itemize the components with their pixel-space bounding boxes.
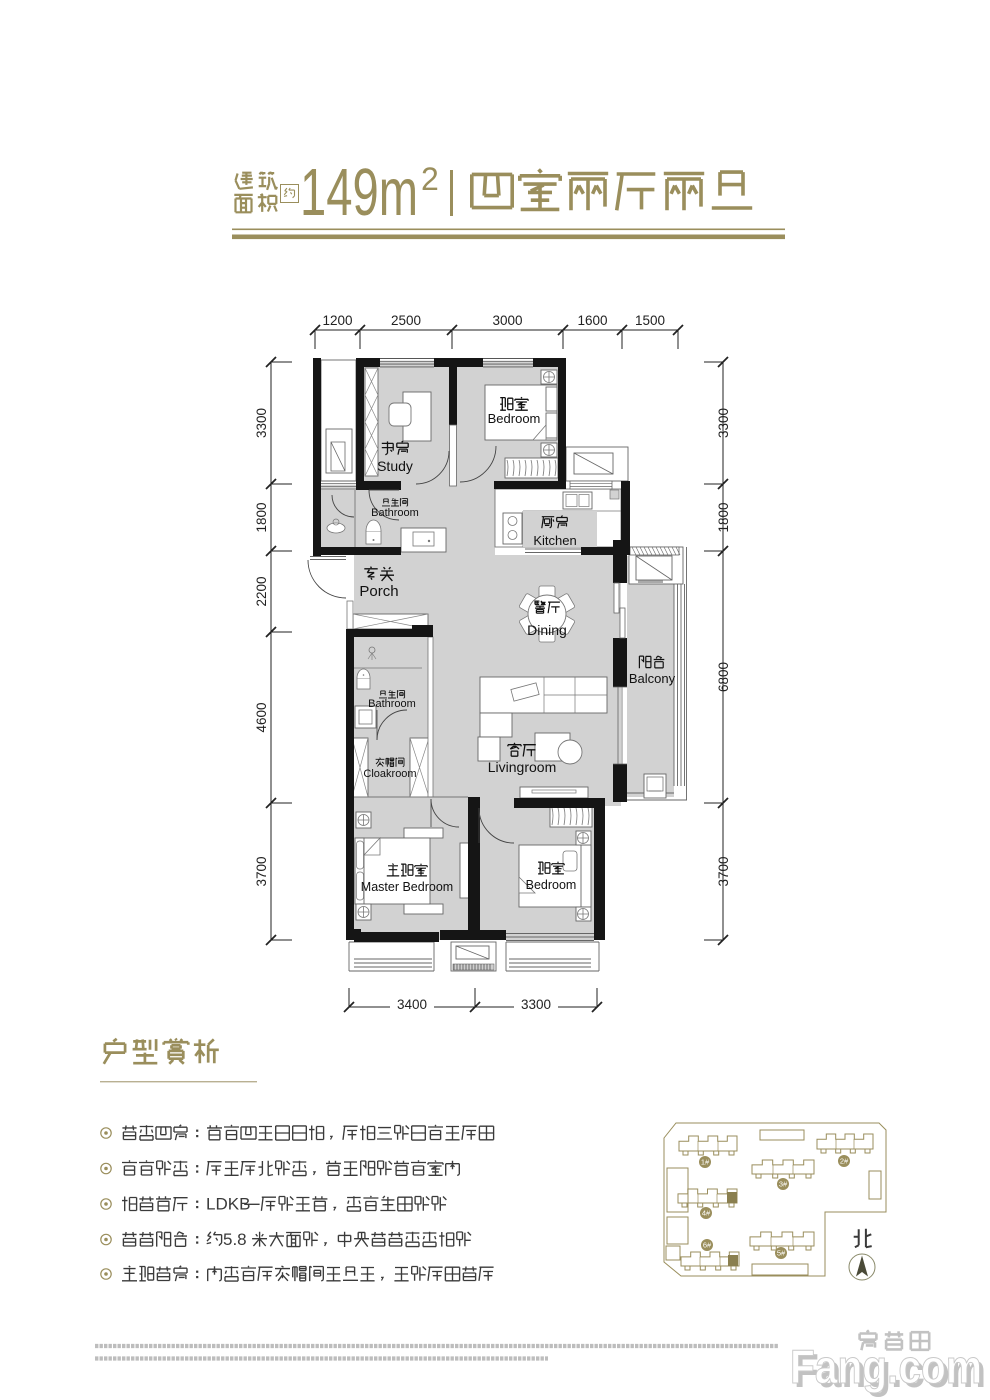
svg-text:Dining: Dining	[527, 622, 567, 638]
svg-text:1800: 1800	[254, 502, 269, 532]
svg-text:4#: 4#	[702, 1209, 711, 1218]
svg-text:5.8: 5.8	[223, 1230, 247, 1249]
svg-text:1600: 1600	[577, 313, 607, 328]
svg-text:Bathroom: Bathroom	[368, 698, 416, 710]
svg-text:2: 2	[421, 161, 439, 197]
svg-text:3700: 3700	[254, 856, 269, 886]
svg-text:149m: 149m	[300, 155, 418, 230]
svg-text:2500: 2500	[391, 313, 421, 328]
svg-text:Porch: Porch	[359, 583, 398, 600]
svg-text:5#: 5#	[777, 1249, 786, 1258]
svg-text:LDKB: LDKB	[206, 1194, 250, 1213]
svg-text:1#: 1#	[701, 1158, 710, 1167]
svg-text:Bedroom: Bedroom	[526, 878, 577, 892]
svg-text:6#: 6#	[703, 1241, 712, 1250]
svg-text:2#: 2#	[840, 1157, 849, 1166]
svg-text:3300: 3300	[716, 408, 731, 438]
svg-text:Cloakroom: Cloakroom	[363, 768, 416, 780]
svg-text:Study: Study	[377, 458, 413, 474]
svg-text:1500: 1500	[635, 313, 665, 328]
svg-text:Balcony: Balcony	[629, 671, 676, 686]
svg-text:3300: 3300	[254, 408, 269, 438]
svg-text:3400: 3400	[397, 997, 427, 1012]
svg-text:Livingroom: Livingroom	[488, 759, 556, 775]
svg-text:6800: 6800	[716, 662, 731, 692]
svg-text:1800: 1800	[716, 502, 731, 532]
svg-text:Master Bedroom: Master Bedroom	[361, 880, 453, 894]
svg-text:2200: 2200	[254, 576, 269, 606]
svg-text:3000: 3000	[492, 313, 522, 328]
svg-text:Bathroom: Bathroom	[371, 507, 419, 519]
svg-text:3300: 3300	[521, 997, 551, 1012]
svg-text:1200: 1200	[322, 313, 352, 328]
svg-text:4600: 4600	[254, 702, 269, 732]
svg-text:Bedroom: Bedroom	[488, 411, 541, 426]
svg-text:3700: 3700	[716, 856, 731, 886]
svg-text:3#: 3#	[779, 1180, 788, 1189]
svg-text:Kitchen: Kitchen	[533, 533, 576, 548]
